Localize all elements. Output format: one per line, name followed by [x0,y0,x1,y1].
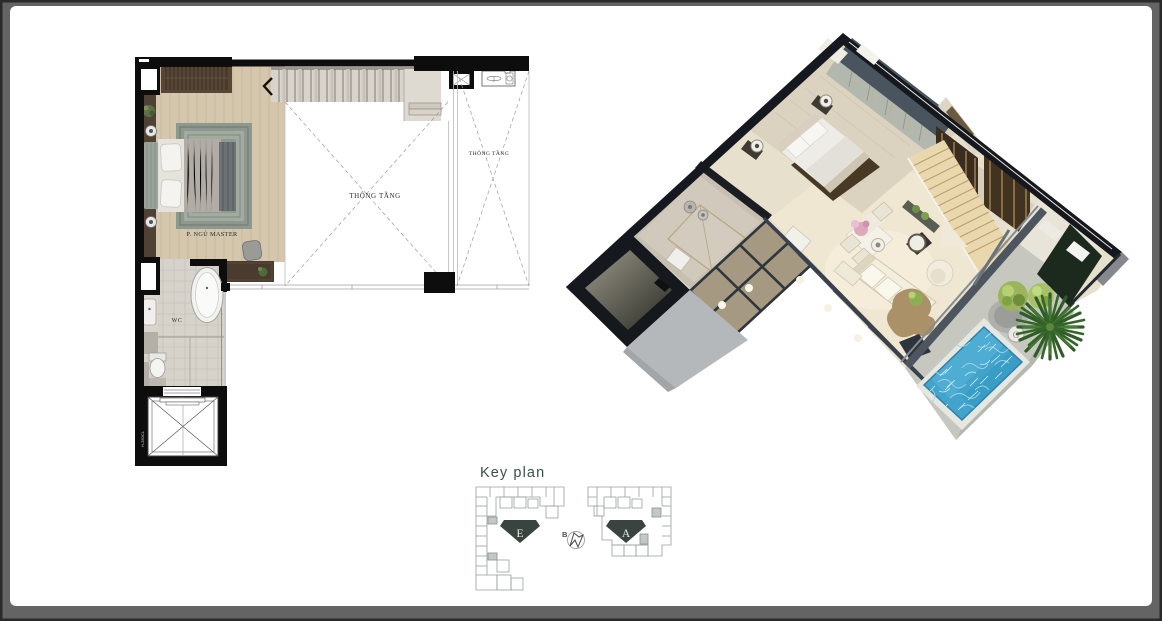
svg-text:E: E [516,528,523,540]
svg-text:B: B [562,530,568,539]
svg-text:H-350CL: H-350CL [140,430,145,447]
svg-text:A: A [622,528,631,540]
svg-text:Key plan: Key plan [480,465,545,481]
svg-text:THÔNG TẦNG: THÔNG TẦNG [469,149,509,157]
svg-text:THÔNG TẦNG: THÔNG TẦNG [349,192,401,200]
svg-text:WC: WC [172,318,183,324]
svg-text:P. NGỦ MASTER: P. NGỦ MASTER [186,230,238,238]
